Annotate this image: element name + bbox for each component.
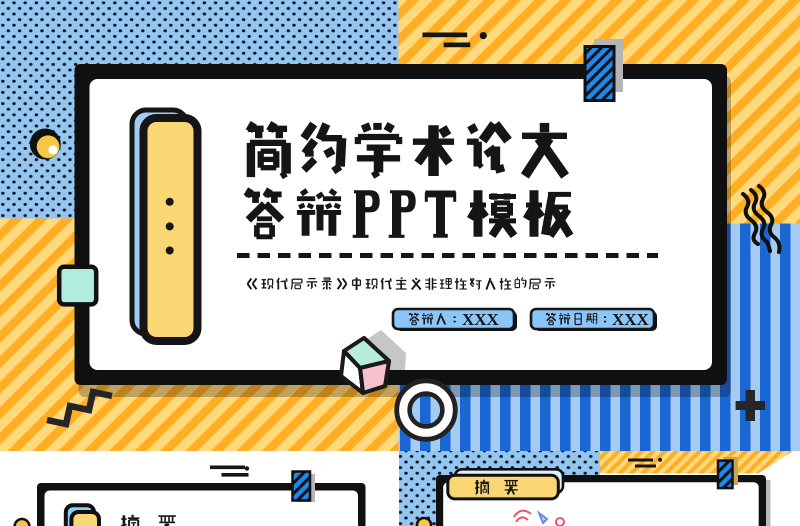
svg-text:XXX: XXX	[462, 310, 500, 329]
svg-text:XXX: XXX	[612, 310, 650, 329]
